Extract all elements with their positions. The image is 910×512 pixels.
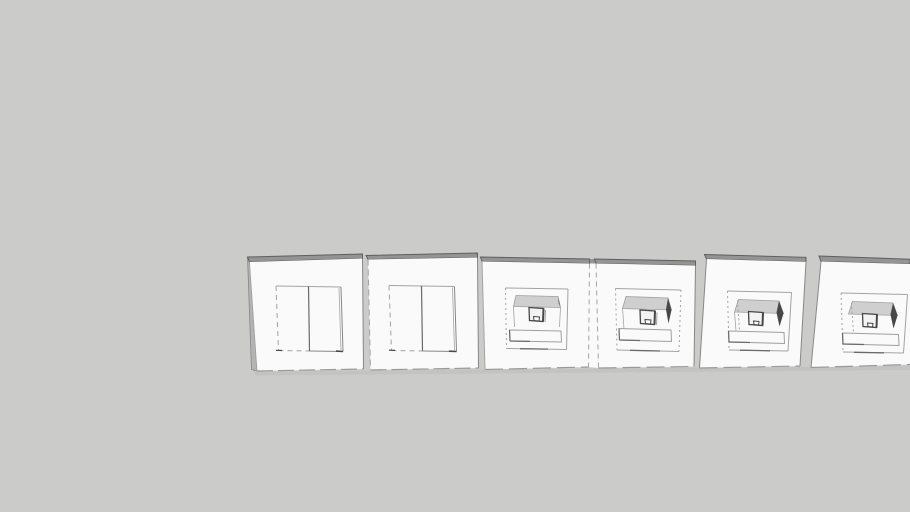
rj45-cast-shadow: [657, 313, 658, 326]
rj45-clip-notch: [645, 320, 651, 325]
label-slot-bottom-shade: [729, 342, 750, 343]
insert-top-face: [514, 296, 561, 308]
rj45-right-shade: [763, 313, 764, 326]
wall-plate-1-double-rocker-switch[interactable]: [248, 254, 364, 371]
viewport-canvas[interactable]: [0, 0, 910, 512]
label-slot-left-shade: [510, 330, 511, 341]
label-slot-left-shade: [843, 333, 844, 344]
insert-top-face: [623, 297, 672, 311]
label-slot: [510, 330, 562, 342]
wall-plate-2-double-rocker-switch[interactable]: [366, 253, 479, 370]
label-slot-left-shade: [619, 329, 620, 341]
plate-front-face: [368, 258, 479, 371]
wall-plate-6-network-jack[interactable]: [811, 256, 910, 368]
wall-plate-4-network-jack[interactable]: [595, 259, 696, 368]
label-slot-bottom-shade: [843, 344, 864, 345]
rj45-clip-notch: [754, 321, 760, 325]
recess-bottom-shade: [854, 352, 884, 353]
rj45-clip-notch: [868, 323, 874, 327]
rj45-cast-shadow: [545, 310, 546, 322]
insert-top-face: [735, 300, 784, 314]
plate-front-face: [250, 259, 364, 372]
rj45-right-shade: [655, 311, 656, 325]
label-slot: [619, 329, 672, 342]
recess-bottom-shade: [630, 350, 660, 351]
viewport-background[interactable]: { "scene": { "width": 910, "height": 512…: [0, 0, 910, 512]
insert-top-face: [849, 302, 898, 316]
label-slot-bottom-shade: [620, 340, 641, 341]
rj45-clip-notch: [534, 317, 540, 322]
rj45-right-shade: [877, 315, 878, 328]
model-viewport[interactable]: [0, 0, 910, 512]
wall-plate-3-network-jack[interactable]: [481, 257, 590, 370]
label-slot-left-shade: [729, 331, 730, 342]
wall-plate-5-network-jack[interactable]: [700, 255, 807, 369]
rj45-right-shade: [543, 309, 544, 322]
recess-bottom-shade: [740, 350, 770, 351]
